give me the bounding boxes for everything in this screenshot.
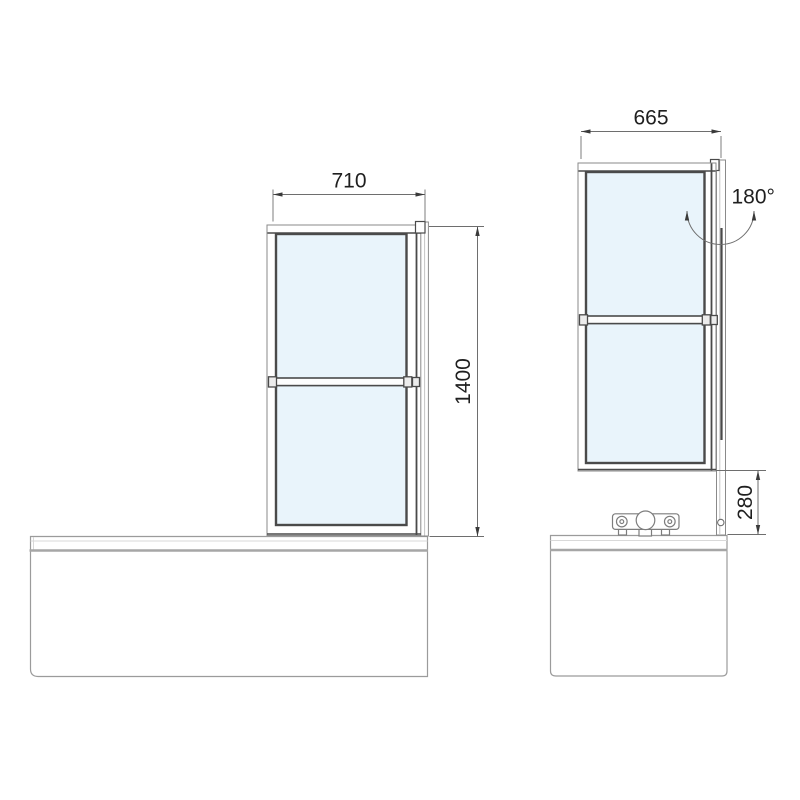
side-width-label: 665 [633,107,668,130]
tap-center-knob [636,511,655,530]
side-screen-panel [578,163,717,471]
front-top-bracket [416,222,426,234]
front-view: 710 1400 [30,170,485,677]
side-pivot-pin [718,519,724,525]
front-height-dimension: 1400 [429,227,484,537]
side-gap-label: 280 [734,485,757,520]
front-bathtub [30,537,429,677]
front-width-dimension: 710 [273,170,425,222]
side-tub-body [551,536,728,677]
tap-left-screw-inner [620,520,624,524]
bath-screen-drawing: 710 1400 [0,0,800,800]
front-screen-panel [267,222,428,537]
front-crossbar-right-cap [404,377,412,387]
side-bathtub [550,536,728,677]
front-crossbar-hinge-cap [413,378,420,387]
side-width-dimension: 665 [581,107,721,160]
side-crossbar [586,316,705,324]
drawing-canvas: 710 1400 [0,0,800,800]
front-tub-body [31,537,428,677]
side-crossbar-hinge-cap [711,316,718,325]
rotation-label: 180° [732,186,775,209]
side-crossbar-right-cap [702,315,710,325]
bath-mixer-tap [613,511,680,536]
front-width-label: 710 [331,170,366,193]
front-crossbar [276,378,407,386]
side-view: 665 180° 280 [550,107,775,677]
tap-right-screw-inner [668,520,672,524]
side-crossbar-left-cap [580,315,588,325]
front-height-label: 1400 [452,358,475,405]
front-crossbar-left-cap [269,377,277,387]
